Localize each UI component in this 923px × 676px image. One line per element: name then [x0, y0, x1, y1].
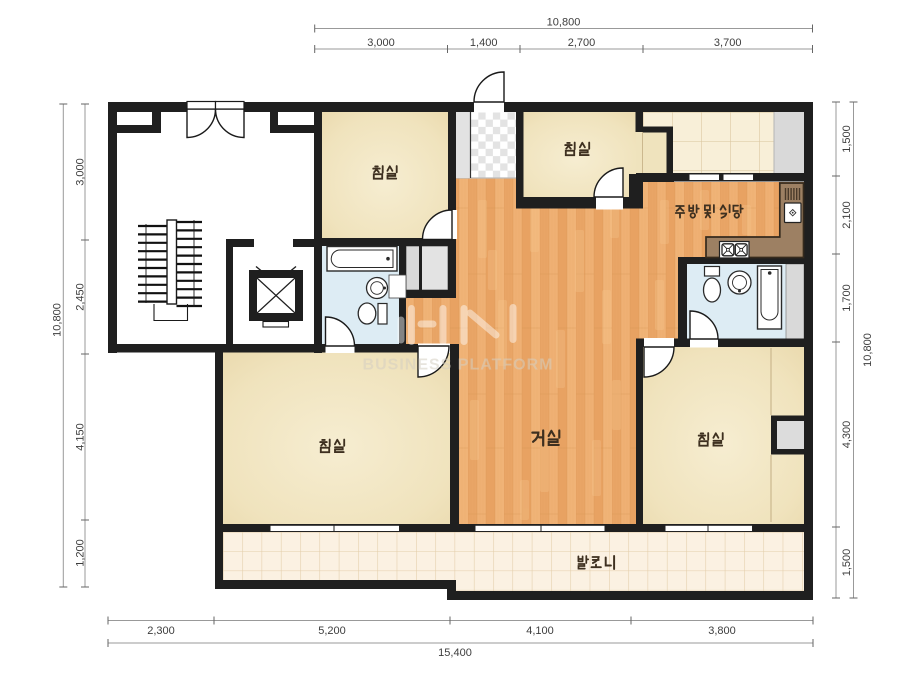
- svg-text:4,100: 4,100: [526, 625, 554, 637]
- svg-text:BUSINESS PLATFORM: BUSINESS PLATFORM: [363, 357, 554, 374]
- svg-text:3,700: 3,700: [714, 37, 742, 49]
- svg-text:1,700: 1,700: [841, 284, 853, 312]
- svg-text:10,800: 10,800: [547, 17, 581, 29]
- svg-text:2,300: 2,300: [147, 625, 175, 637]
- svg-text:3,000: 3,000: [75, 158, 87, 186]
- svg-text:1,400: 1,400: [470, 37, 498, 49]
- svg-text:1,500: 1,500: [841, 549, 853, 577]
- svg-text:10,800: 10,800: [52, 303, 64, 337]
- svg-text:2,700: 2,700: [568, 37, 596, 49]
- svg-text:10,800: 10,800: [862, 333, 874, 367]
- svg-text:1,200: 1,200: [75, 539, 87, 567]
- svg-text:3,000: 3,000: [367, 37, 395, 49]
- svg-text:2,450: 2,450: [75, 283, 87, 311]
- svg-text:15,400: 15,400: [438, 647, 472, 659]
- svg-text:1,500: 1,500: [841, 125, 853, 153]
- svg-text:3,800: 3,800: [708, 625, 736, 637]
- svg-text:2,100: 2,100: [841, 201, 853, 229]
- svg-text:4,300: 4,300: [841, 421, 853, 449]
- svg-text:4,150: 4,150: [75, 423, 87, 451]
- svg-text:5,200: 5,200: [318, 625, 346, 637]
